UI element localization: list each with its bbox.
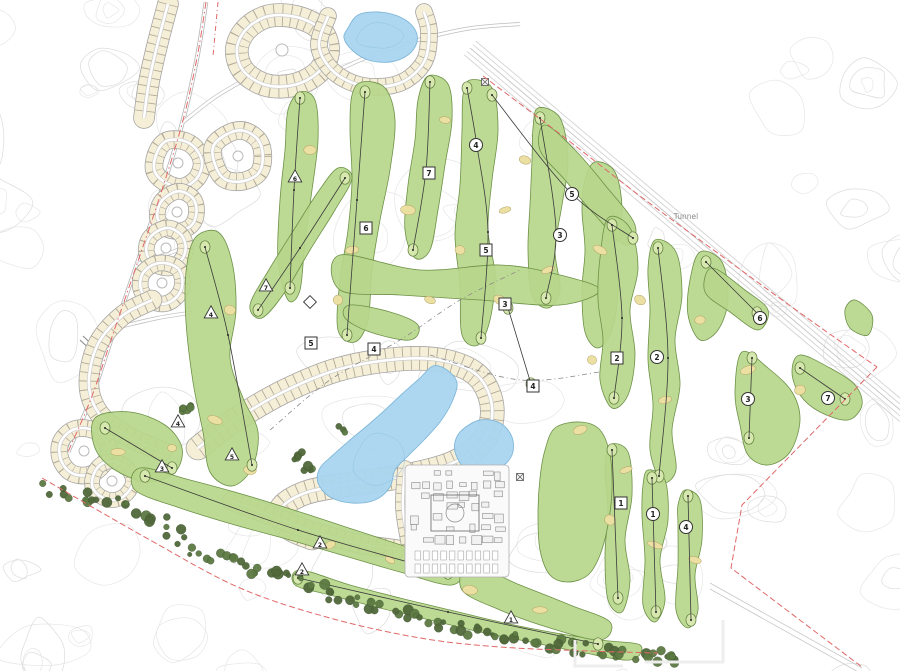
svg-text:2: 2 bbox=[654, 353, 659, 362]
svg-text:3: 3 bbox=[557, 231, 562, 240]
svg-text:4: 4 bbox=[473, 141, 478, 150]
tunnel-label: Tunnel bbox=[673, 212, 698, 221]
svg-text:7: 7 bbox=[825, 394, 830, 403]
svg-text:4: 4 bbox=[209, 312, 213, 319]
svg-text:5: 5 bbox=[569, 190, 574, 199]
svg-text:1: 1 bbox=[618, 499, 623, 508]
diamond-marker bbox=[304, 296, 317, 309]
svg-text:3: 3 bbox=[160, 466, 164, 473]
svg-text:2: 2 bbox=[614, 354, 619, 363]
svg-text:1: 1 bbox=[650, 510, 655, 519]
svg-text:6: 6 bbox=[293, 176, 297, 183]
svg-text:4: 4 bbox=[530, 382, 535, 391]
svg-text:7: 7 bbox=[264, 285, 268, 292]
svg-text:3: 3 bbox=[745, 395, 750, 404]
svg-text:6: 6 bbox=[757, 314, 762, 323]
svg-text:5: 5 bbox=[483, 246, 488, 255]
site-plan-svg: 453214637765324451674435221 Tunnel bbox=[0, 0, 900, 671]
svg-text:4: 4 bbox=[371, 345, 376, 354]
svg-text:2: 2 bbox=[300, 569, 304, 576]
svg-text:5: 5 bbox=[308, 339, 313, 348]
golf-course-master-plan: 453214637765324451674435221 Tunnel bbox=[0, 0, 900, 671]
svg-text:4: 4 bbox=[176, 421, 180, 428]
utility-icon bbox=[517, 474, 524, 481]
svg-text:7: 7 bbox=[426, 169, 431, 178]
svg-text:2: 2 bbox=[318, 542, 322, 549]
svg-text:6: 6 bbox=[363, 224, 368, 233]
svg-text:1: 1 bbox=[509, 617, 513, 624]
svg-text:5: 5 bbox=[230, 454, 234, 461]
svg-text:4: 4 bbox=[683, 523, 688, 532]
svg-text:3: 3 bbox=[502, 300, 507, 309]
